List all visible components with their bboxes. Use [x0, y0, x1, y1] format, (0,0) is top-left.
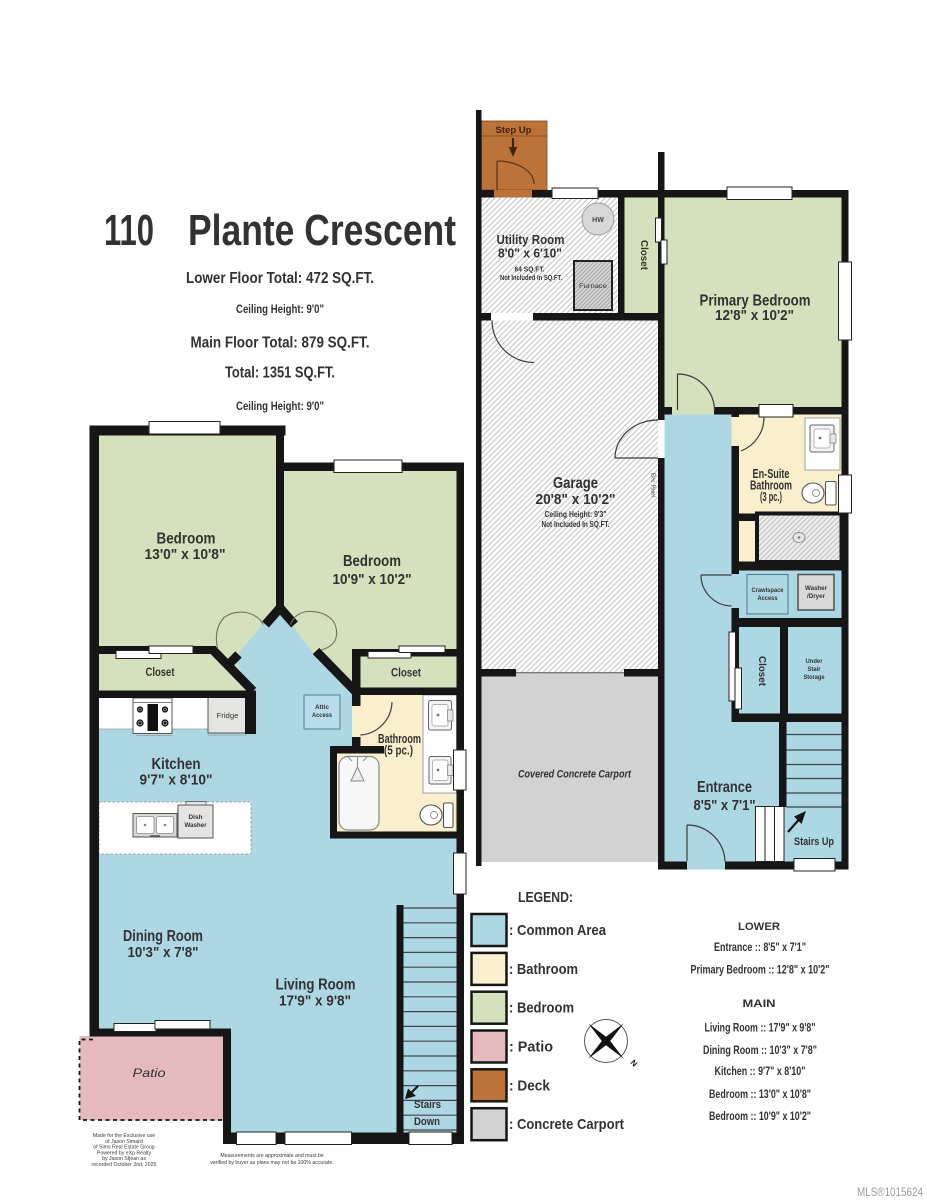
svg-text:Down: Down: [414, 1116, 440, 1128]
svg-text:: Bedroom: : Bedroom: [509, 1000, 574, 1017]
svg-text:verified by buyer as plans may: verified by buyer as plans may not be 10…: [210, 1160, 333, 1166]
svg-text:LEGEND:: LEGEND:: [518, 890, 573, 906]
svg-text:20'8" x 10'2": 20'8" x 10'2": [536, 491, 616, 508]
svg-text:Entrance: Entrance: [697, 779, 752, 796]
svg-text:(5 pc.): (5 pc.): [384, 744, 413, 758]
svg-text:Bedroom :: 10'9" x 10'2": Bedroom :: 10'9" x 10'2": [709, 1111, 811, 1123]
svg-text:Primary Bedroom: Primary Bedroom: [700, 293, 811, 310]
svg-text:Bedroom: Bedroom: [343, 553, 401, 570]
svg-text:8'5" x 7'1": 8'5" x 7'1": [694, 798, 756, 814]
svg-text:Dining Room: Dining Room: [123, 928, 203, 945]
svg-text:110: 110: [104, 206, 154, 255]
svg-text:Bedroom: Bedroom: [157, 531, 216, 548]
svg-text:Washer: Washer: [185, 822, 207, 829]
svg-text:Attic: Attic: [315, 704, 329, 711]
svg-text:Dining Room :: 10'3" x 7'8": Dining Room :: 10'3" x 7'8": [703, 1045, 817, 1057]
svg-text:Patio: Patio: [133, 1066, 166, 1080]
svg-text:Utility Room: Utility Room: [497, 232, 565, 247]
svg-text:MAIN: MAIN: [743, 998, 776, 1010]
svg-text:(3 pc.): (3 pc.): [760, 490, 782, 504]
svg-text:10'9" x 10'2": 10'9" x 10'2": [333, 571, 412, 588]
svg-text:Washer: Washer: [805, 585, 827, 592]
svg-text:Under: Under: [806, 658, 823, 665]
svg-text:Closet: Closet: [756, 656, 768, 686]
svg-text:Kitchen: Kitchen: [152, 756, 201, 773]
svg-text:: Patio: : Patio: [509, 1039, 553, 1056]
svg-text:Measurements are approximate a: Measurements are approximate and must be: [220, 1153, 323, 1159]
svg-text:Living Room :: 17'9" x 9'8": Living Room :: 17'9" x 9'8": [705, 1023, 816, 1035]
svg-text:Entrance :: 8'5" x 7'1": Entrance :: 8'5" x 7'1": [714, 942, 806, 954]
svg-text:12'8" x 10'2": 12'8" x 10'2": [715, 308, 794, 324]
svg-text:9'7" x 8'10": 9'7" x 8'10": [140, 773, 213, 789]
svg-text:Covered Concrete Carport: Covered Concrete Carport: [518, 769, 632, 781]
svg-text:HW: HW: [592, 217, 604, 224]
svg-text:Not Included In SQ.FT.: Not Included In SQ.FT.: [500, 273, 562, 282]
svg-text:Closet: Closet: [391, 666, 421, 680]
svg-text:Ceiling Height: 9'0": Ceiling Height: 9'0": [236, 304, 324, 316]
svg-text:Access: Access: [312, 712, 332, 719]
svg-text:Stairs Up: Stairs Up: [794, 836, 834, 848]
svg-text:Plante Crescent: Plante Crescent: [188, 206, 456, 255]
svg-text:17'9" x 9'8": 17'9" x 9'8": [279, 993, 351, 1010]
svg-text:Primary Bedroom :: 12'8" x 10': Primary Bedroom :: 12'8" x 10'2": [691, 965, 830, 977]
svg-text:Ceiling Height: 9'3": Ceiling Height: 9'3": [545, 509, 607, 519]
svg-text:MLS®1015624: MLS®1015624: [857, 1185, 923, 1199]
svg-text:recorded October 2nd, 2025: recorded October 2nd, 2025: [92, 1162, 157, 1168]
svg-text:/Dryer: /Dryer: [807, 593, 825, 600]
svg-text:Storage: Storage: [804, 674, 825, 681]
svg-text:: Bathroom: : Bathroom: [509, 961, 578, 978]
svg-text:10'3" x 7'8": 10'3" x 7'8": [128, 944, 199, 961]
svg-text:Kitchen :: 9'7" x 8'10": Kitchen :: 9'7" x 8'10": [715, 1066, 806, 1078]
svg-text:Fridge: Fridge: [217, 713, 239, 720]
svg-text:Living Room: Living Room: [276, 977, 356, 994]
svg-text:: Concrete Carport: : Concrete Carport: [509, 1116, 624, 1133]
svg-text:Closet: Closet: [146, 665, 175, 679]
svg-text:Stair: Stair: [808, 666, 821, 673]
svg-text:LOWER: LOWER: [738, 921, 780, 933]
svg-text:Step Up: Step Up: [496, 125, 533, 135]
svg-text:: Deck: : Deck: [509, 1077, 551, 1094]
svg-text:Lower Floor Total: 472 SQ.FT.: Lower Floor Total: 472 SQ.FT.: [186, 270, 374, 287]
svg-text:Main Floor Total: 879 SQ.FT.: Main Floor Total: 879 SQ.FT.: [191, 335, 370, 352]
svg-text:Elec. Panel: Elec. Panel: [650, 473, 656, 497]
svg-text:Total: 1351 SQ.FT.: Total: 1351 SQ.FT.: [225, 365, 335, 382]
svg-text:: Common Area: : Common Area: [509, 922, 607, 939]
svg-text:Furnace: Furnace: [579, 284, 608, 290]
svg-text:Access: Access: [758, 595, 778, 602]
svg-text:Crawlspace: Crawlspace: [752, 587, 784, 594]
svg-text:Ceiling Height: 9'0": Ceiling Height: 9'0": [236, 401, 324, 413]
svg-text:13'0" x 10'8": 13'0" x 10'8": [145, 546, 226, 563]
svg-text:Dish: Dish: [189, 814, 203, 821]
svg-text:N: N: [629, 1058, 640, 1069]
svg-text:Not Included In SQ.FT.: Not Included In SQ.FT.: [542, 519, 610, 529]
svg-text:8'0" x 6'10": 8'0" x 6'10": [498, 247, 562, 261]
svg-text:Closet: Closet: [638, 240, 650, 270]
svg-text:Garage: Garage: [553, 475, 598, 492]
svg-text:Bedroom :: 13'0" x 10'8": Bedroom :: 13'0" x 10'8": [709, 1089, 811, 1101]
svg-text:Stairs: Stairs: [414, 1099, 441, 1111]
